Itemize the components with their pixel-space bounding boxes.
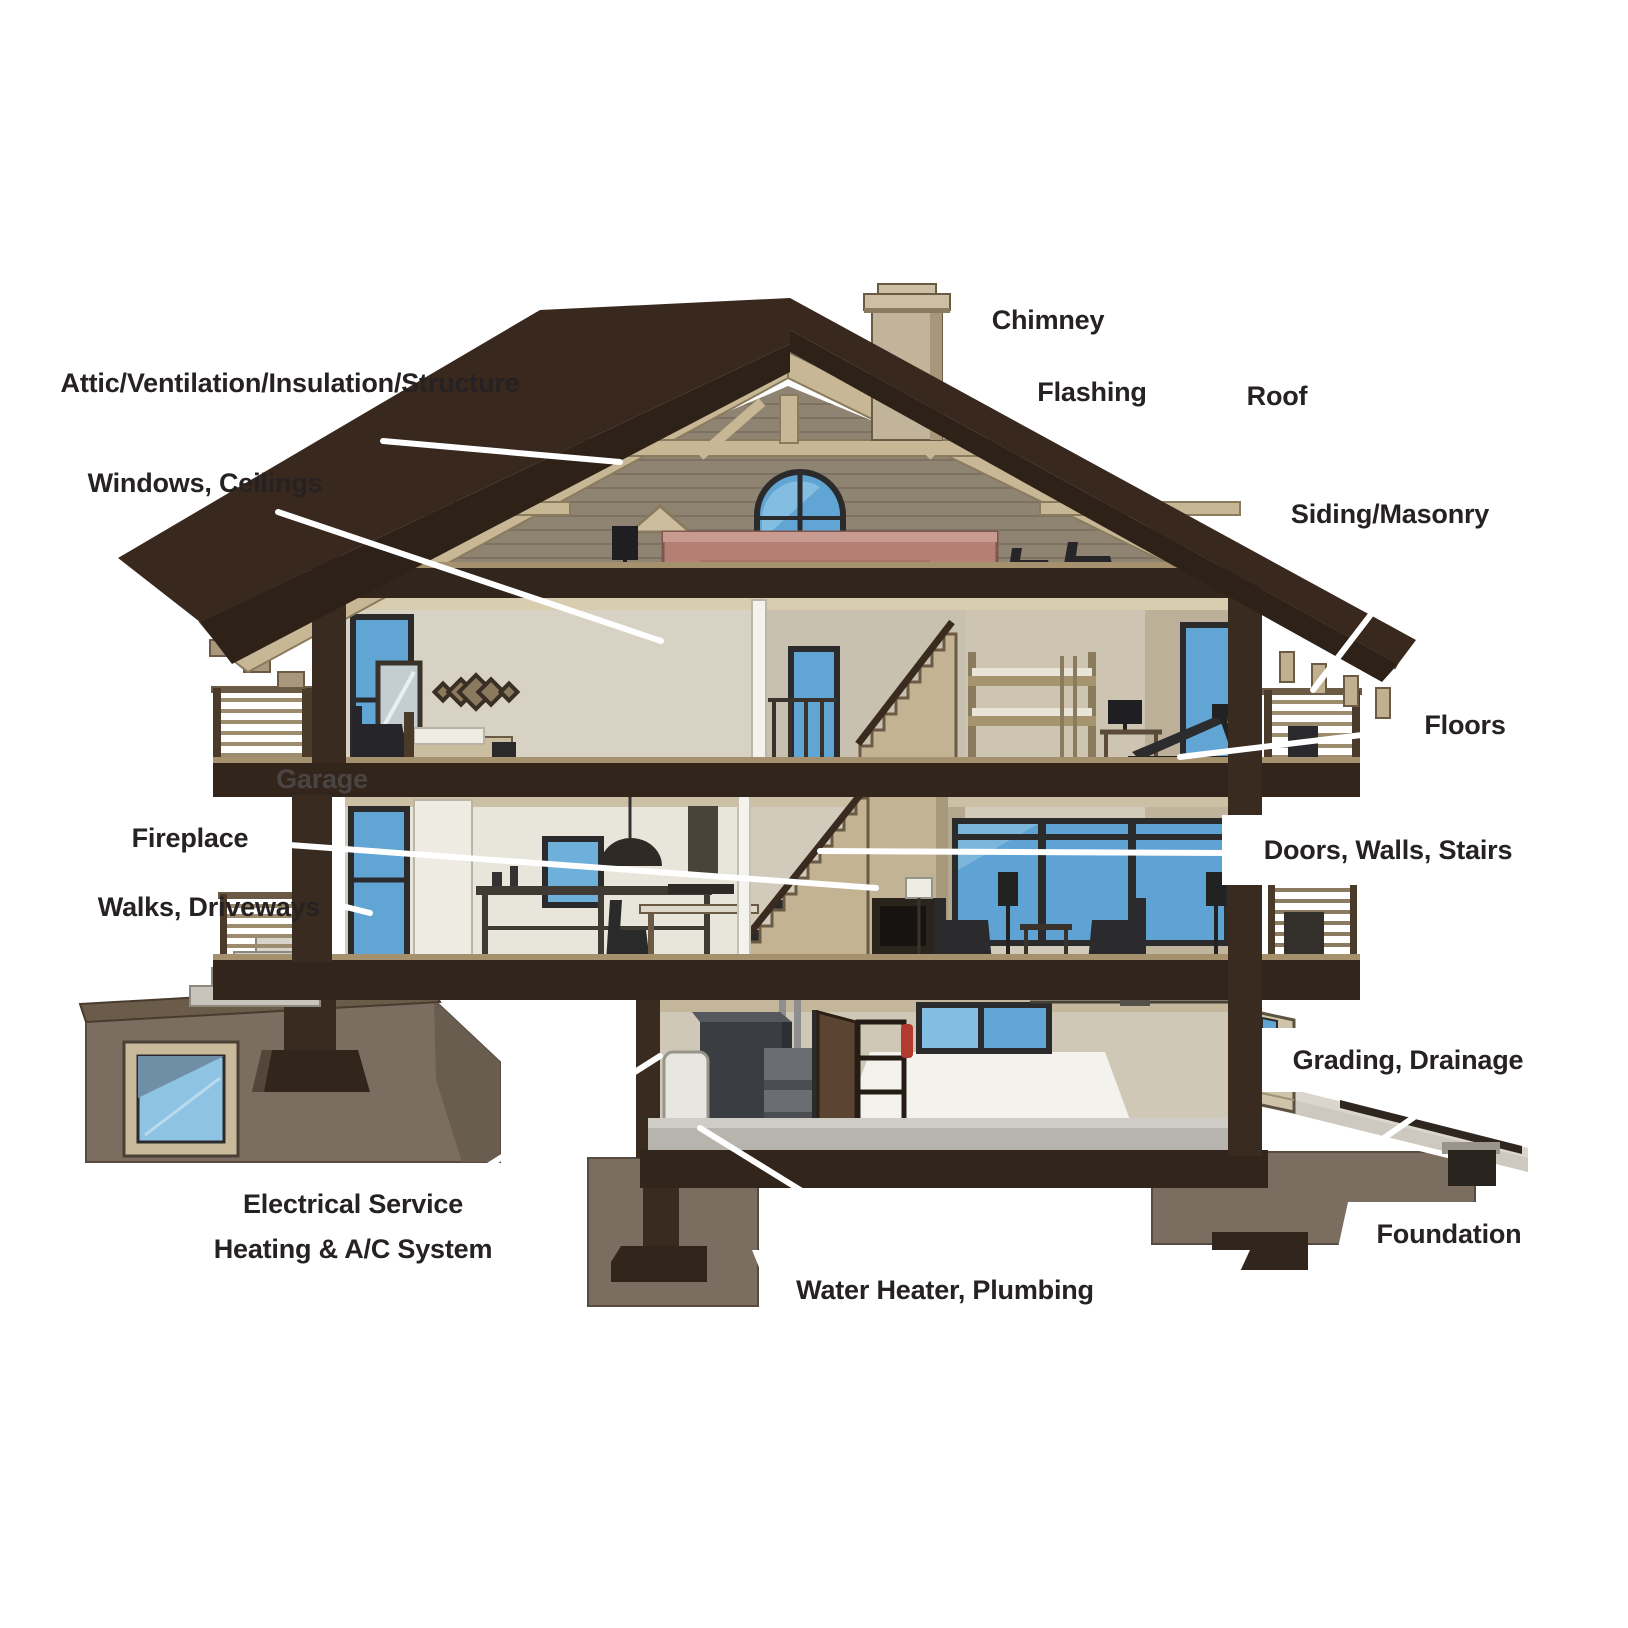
label-flashing: Flashing [1037, 376, 1146, 410]
basement-window-left [124, 1042, 238, 1156]
drain [1442, 1142, 1500, 1186]
kitchen-window [542, 836, 604, 908]
tall-cabinet [414, 800, 472, 962]
label-grading-drainage: Grading, Drainage [1293, 1044, 1524, 1078]
label-windows-ceilings: Windows, Ceilings [88, 467, 323, 501]
label-garage: Garage [276, 763, 368, 797]
leader-doors [820, 851, 1230, 853]
label-floors: Floors [1424, 709, 1505, 743]
left-footing [611, 1246, 707, 1282]
house-cross-section-illustration [0, 0, 1628, 1628]
label-fireplace: Fireplace [132, 822, 249, 856]
label-electrical-line1: Electrical Service [214, 1182, 493, 1227]
label-attic: Attic/Ventilation/Insulation/Structure [61, 367, 520, 401]
fire-extinguisher [901, 1024, 913, 1058]
label-doors-walls-stairs: Doors, Walls, Stairs [1264, 834, 1513, 868]
balcony-railing-left [211, 686, 315, 766]
label-chimney: Chimney [992, 304, 1105, 338]
main-floor-band [213, 960, 1360, 1000]
hall-window [788, 646, 840, 764]
attic-speaker [612, 526, 638, 560]
label-electrical-line2: Heating & A/C System [214, 1227, 493, 1272]
first-floor [213, 790, 1360, 1000]
second-floor-band [213, 763, 1360, 797]
house-inspection-diagram: Chimney Attic/Ventilation/Insulation/Str… [0, 0, 1628, 1628]
label-electrical-heating: Electrical Service Heating & A/C System [214, 1182, 493, 1272]
label-roof: Roof [1247, 380, 1308, 414]
label-siding-masonry: Siding/Masonry [1291, 498, 1489, 532]
label-water-heater-plumbing: Water Heater, Plumbing [796, 1274, 1094, 1308]
range-hood [688, 806, 718, 876]
basement-floor-band [640, 1150, 1268, 1188]
living-room-windows [952, 818, 1230, 946]
label-walks-driveways: Walks, Driveways [98, 891, 320, 925]
label-foundation: Foundation [1377, 1218, 1522, 1252]
porch-post [292, 795, 332, 962]
basement-window-right [916, 1002, 1052, 1054]
patio-door-first-floor [348, 806, 410, 962]
basement-level [636, 986, 1294, 1188]
